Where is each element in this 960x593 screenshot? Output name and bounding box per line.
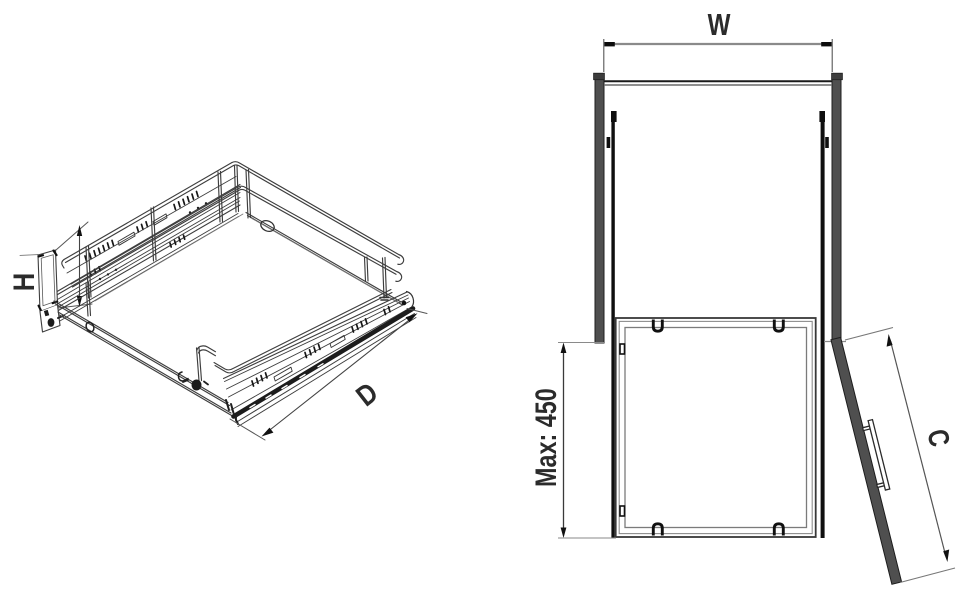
svg-text:D: D — [350, 376, 384, 412]
svg-text:Max: 450: Max: 450 — [529, 388, 562, 487]
svg-text:W: W — [708, 7, 731, 42]
svg-text:C: C — [921, 426, 957, 449]
svg-text:H: H — [7, 273, 40, 291]
